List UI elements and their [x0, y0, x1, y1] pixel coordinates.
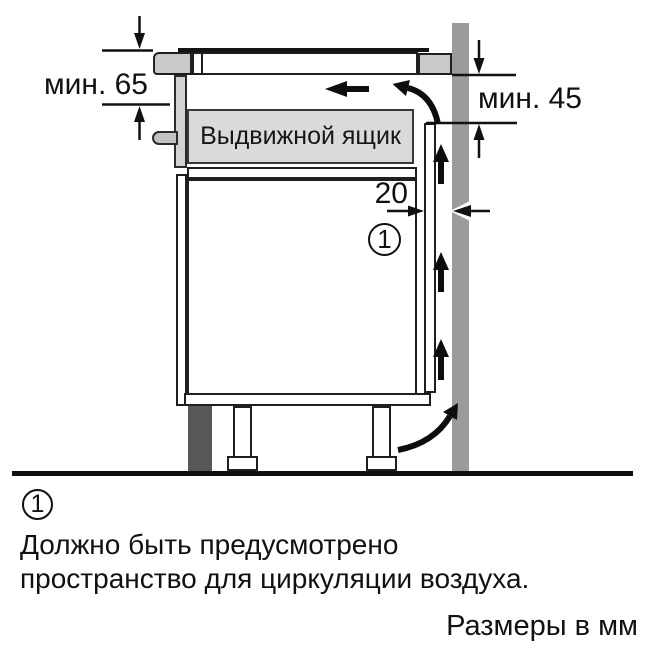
plinth-panel: [188, 406, 212, 471]
cabinet-leg-front-foot: [227, 456, 258, 471]
floor-line: [12, 471, 633, 476]
worktop-left-section: [153, 52, 192, 75]
units-label: Размеры в мм: [380, 610, 638, 643]
dim65-up-arrow-icon: [134, 106, 145, 140]
cabinet-leg-rear: [372, 406, 391, 458]
footnote-marker-number: 1: [31, 490, 45, 519]
wall-section: [452, 23, 469, 471]
cabinet-leg-rear-foot: [366, 456, 397, 471]
installation-diagram: Выдвижной ящик: [0, 0, 650, 650]
cabinet-box: [187, 179, 417, 397]
hob-inner-edge: [201, 53, 203, 74]
footnote-text: Должно быть предусмотрено пространство д…: [20, 528, 620, 596]
callout-1-badge: 1: [368, 223, 401, 256]
footnote-marker: 1: [22, 489, 53, 520]
dim45-down-arrow-icon: [474, 40, 485, 74]
drawer-front: Выдвижной ящик: [187, 109, 414, 164]
airflow-arrow-left-icon: [325, 81, 369, 97]
cabinet-back-panel: [424, 123, 436, 393]
footnote-text-line-1: Должно быть предусмотрено: [20, 528, 620, 562]
hob-glass-top: [178, 48, 429, 52]
worktop-right-section: [418, 53, 452, 75]
callout-1-number: 1: [377, 224, 391, 255]
dim65-down-arrow-icon: [134, 16, 145, 49]
drawer-handle: [152, 131, 178, 145]
footnote-text-line-2: пространство для циркуляции воздуха.: [20, 562, 620, 596]
cabinet-bottom-shelf: [184, 393, 431, 406]
dim-label-min65: мин. 65: [36, 70, 148, 100]
dim-label-gap20: 20: [358, 179, 408, 209]
hob-body: [192, 52, 418, 75]
dim-label-min45: мин. 45: [478, 84, 598, 114]
drawer-label: Выдвижной ящик: [200, 122, 401, 151]
airflow-arrow-curve-bottom-icon: [398, 403, 458, 450]
cabinet-side-panel: [176, 174, 187, 406]
cabinet-leg-front: [233, 406, 252, 458]
cabinet-front-panel: [174, 75, 187, 168]
dim45-up-arrow-icon: [474, 124, 485, 158]
